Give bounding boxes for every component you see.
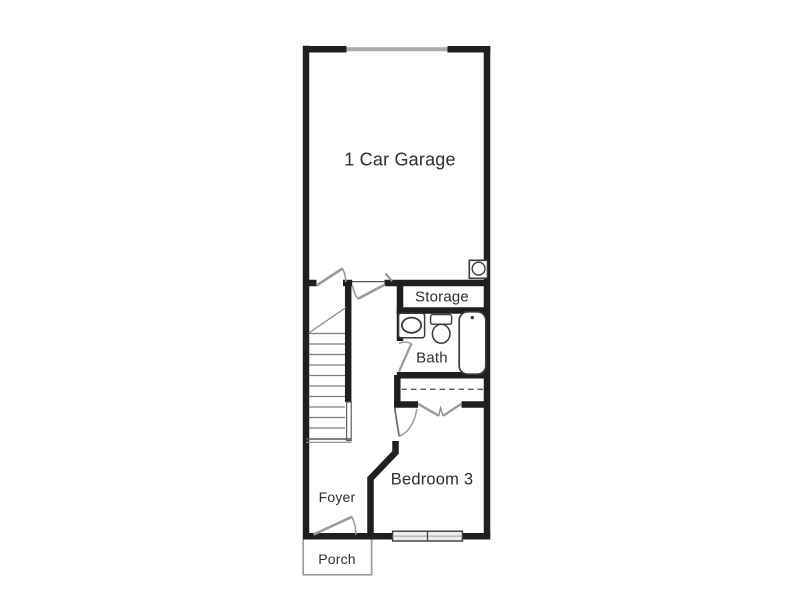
closet-double-doors-icon xyxy=(418,404,462,416)
water-heater-icon xyxy=(469,260,487,278)
room-label-bath: Bath xyxy=(416,350,448,367)
front-door xyxy=(314,517,356,535)
room-label-garage: 1 Car Garage xyxy=(344,150,455,171)
window-icon xyxy=(393,531,463,541)
floorplan-canvas: 1 Car Garage Storage Bath Bedroom 3 Foye… xyxy=(0,0,800,600)
room-label-bedroom3: Bedroom 3 xyxy=(391,471,474,490)
room-label-foyer: Foyer xyxy=(319,489,356,505)
garage-stair-door xyxy=(317,269,346,286)
stair-rail xyxy=(347,402,352,441)
bath-door xyxy=(399,342,412,372)
bedroom-door xyxy=(395,408,417,437)
room-label-storage: Storage xyxy=(415,289,469,306)
stair-break-line xyxy=(309,308,346,334)
room-label-porch: Porch xyxy=(318,551,356,567)
sink-vanity-icon xyxy=(399,313,425,338)
toilet-icon xyxy=(431,315,452,344)
stairs-icon xyxy=(306,308,352,443)
floorplan-drawing xyxy=(0,0,800,600)
bathtub-icon xyxy=(459,312,486,374)
